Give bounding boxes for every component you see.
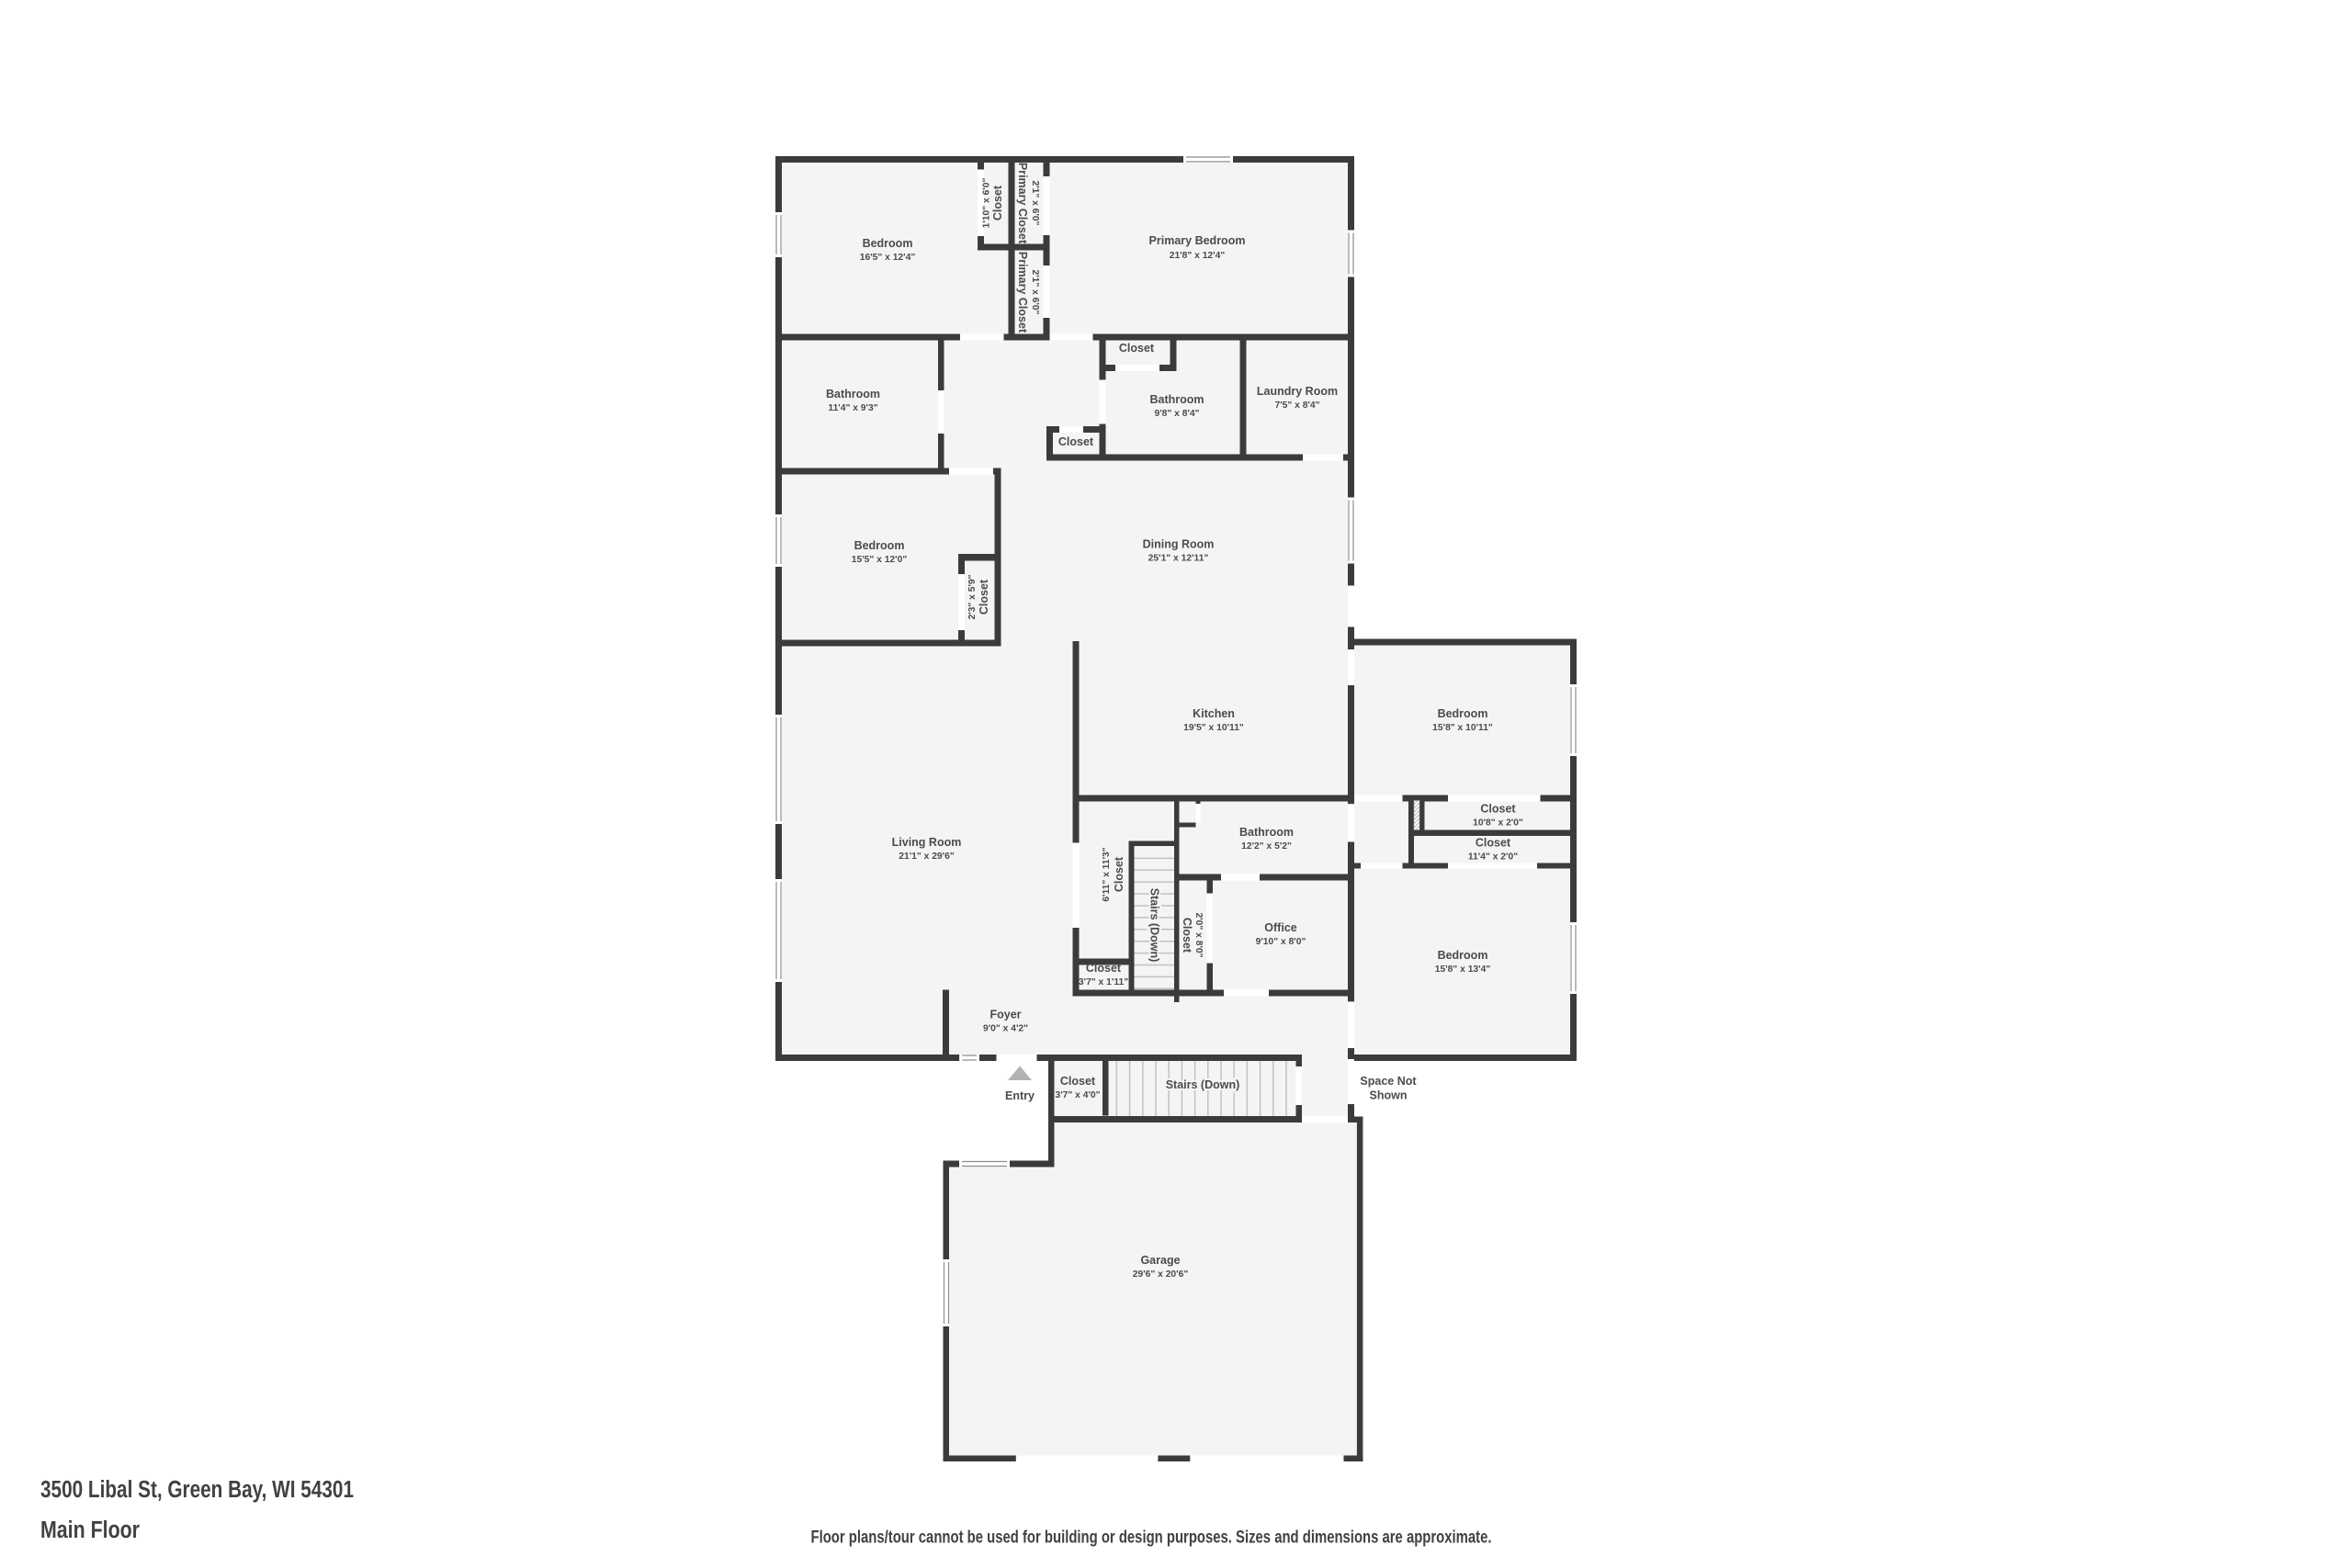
- svg-text:Closet: Closet: [1113, 856, 1125, 892]
- svg-text:10'8" x 2'0": 10'8" x 2'0": [1473, 818, 1523, 829]
- svg-text:Shown: Shown: [1370, 1089, 1408, 1102]
- svg-text:Closet: Closet: [1060, 1075, 1096, 1088]
- svg-text:2'3" x 5'9": 2'3" x 5'9": [967, 574, 978, 619]
- svg-text:19'5" x 10'11": 19'5" x 10'11": [1183, 723, 1244, 733]
- svg-text:9'0" x 4'2": 9'0" x 4'2": [983, 1024, 1028, 1034]
- svg-text:Bedroom: Bedroom: [1438, 949, 1488, 962]
- svg-text:7'5" x 8'4": 7'5" x 8'4": [1274, 400, 1319, 411]
- svg-text:11'4" x 2'0": 11'4" x 2'0": [1468, 852, 1518, 863]
- svg-text:Closet: Closet: [978, 579, 990, 615]
- svg-text:Bathroom: Bathroom: [1239, 826, 1294, 839]
- svg-text:Foyer: Foyer: [989, 1009, 1021, 1021]
- svg-text:Closet: Closet: [1119, 342, 1155, 355]
- svg-text:Closet: Closet: [991, 185, 1004, 220]
- svg-text:Main Floor: Main Floor: [40, 1517, 140, 1543]
- svg-text:Bedroom: Bedroom: [854, 539, 905, 552]
- svg-text:Bedroom: Bedroom: [863, 237, 913, 250]
- svg-text:29'6" x 20'6": 29'6" x 20'6": [1133, 1269, 1189, 1280]
- svg-text:15'8" x 10'11": 15'8" x 10'11": [1432, 723, 1493, 733]
- svg-text:Bathroom: Bathroom: [826, 388, 880, 400]
- svg-text:Bedroom: Bedroom: [1438, 707, 1488, 720]
- svg-text:25'1" x 12'11": 25'1" x 12'11": [1148, 554, 1209, 564]
- svg-text:Primary Bedroom: Primary Bedroom: [1149, 234, 1246, 247]
- svg-text:21'1" x 29'6": 21'1" x 29'6": [899, 852, 955, 862]
- svg-text:Stairs (Down): Stairs (Down): [1166, 1078, 1240, 1091]
- svg-text:Closet: Closet: [1086, 962, 1122, 975]
- svg-text:3'7" x 4'0": 3'7" x 4'0": [1055, 1090, 1100, 1100]
- svg-text:11'4" x 9'3": 11'4" x 9'3": [828, 403, 877, 413]
- svg-text:15'8" x 13'4": 15'8" x 13'4": [1435, 964, 1491, 975]
- svg-text:1'10" x 6'0": 1'10" x 6'0": [982, 178, 992, 229]
- svg-text:Closet: Closet: [1058, 435, 1094, 448]
- svg-text:Laundry Room: Laundry Room: [1257, 385, 1338, 398]
- svg-text:2'1" x 6'0": 2'1" x 6'0": [1030, 269, 1040, 314]
- svg-text:6'11" x 11'3": 6'11" x 11'3": [1102, 847, 1112, 901]
- svg-text:3500 Libal St, Green Bay, WI 5: 3500 Libal St, Green Bay, WI 54301: [40, 1477, 354, 1503]
- svg-text:3'7" x 1'11": 3'7" x 1'11": [1079, 977, 1128, 987]
- svg-text:Kitchen: Kitchen: [1193, 707, 1235, 720]
- svg-text:2'0" x 8'0": 2'0" x 8'0": [1193, 912, 1204, 957]
- svg-text:15'5" x 12'0": 15'5" x 12'0": [852, 555, 908, 565]
- svg-text:21'8" x 12'4": 21'8" x 12'4": [1170, 251, 1226, 261]
- svg-text:Office: Office: [1264, 921, 1296, 934]
- svg-text:Garage: Garage: [1140, 1254, 1180, 1267]
- svg-text:Closet: Closet: [1476, 837, 1511, 850]
- svg-text:12'2" x 5'2": 12'2" x 5'2": [1241, 841, 1292, 852]
- svg-text:16'5" x 12'4": 16'5" x 12'4": [860, 253, 916, 263]
- svg-text:Closet: Closet: [1181, 918, 1193, 953]
- svg-text:Floor plans/tour cannot be use: Floor plans/tour cannot be used for buil…: [811, 1529, 1492, 1548]
- svg-text:2'1" x 6'0": 2'1" x 6'0": [1030, 180, 1040, 225]
- svg-text:9'8" x 8'4": 9'8" x 8'4": [1154, 409, 1199, 419]
- svg-text:Living Room: Living Room: [892, 836, 962, 849]
- svg-text:Primary Closet: Primary Closet: [1016, 252, 1029, 333]
- svg-text:Bathroom: Bathroom: [1149, 393, 1204, 406]
- svg-text:Stairs (Down): Stairs (Down): [1148, 888, 1161, 963]
- svg-text:Closet: Closet: [1480, 803, 1516, 816]
- svg-text:Space Not: Space Not: [1360, 1075, 1417, 1088]
- svg-text:Dining Room: Dining Room: [1143, 538, 1215, 551]
- svg-text:Entry: Entry: [1005, 1089, 1035, 1102]
- svg-text:9'10" x 8'0": 9'10" x 8'0": [1256, 937, 1306, 947]
- svg-text:Primary Closet: Primary Closet: [1016, 163, 1029, 244]
